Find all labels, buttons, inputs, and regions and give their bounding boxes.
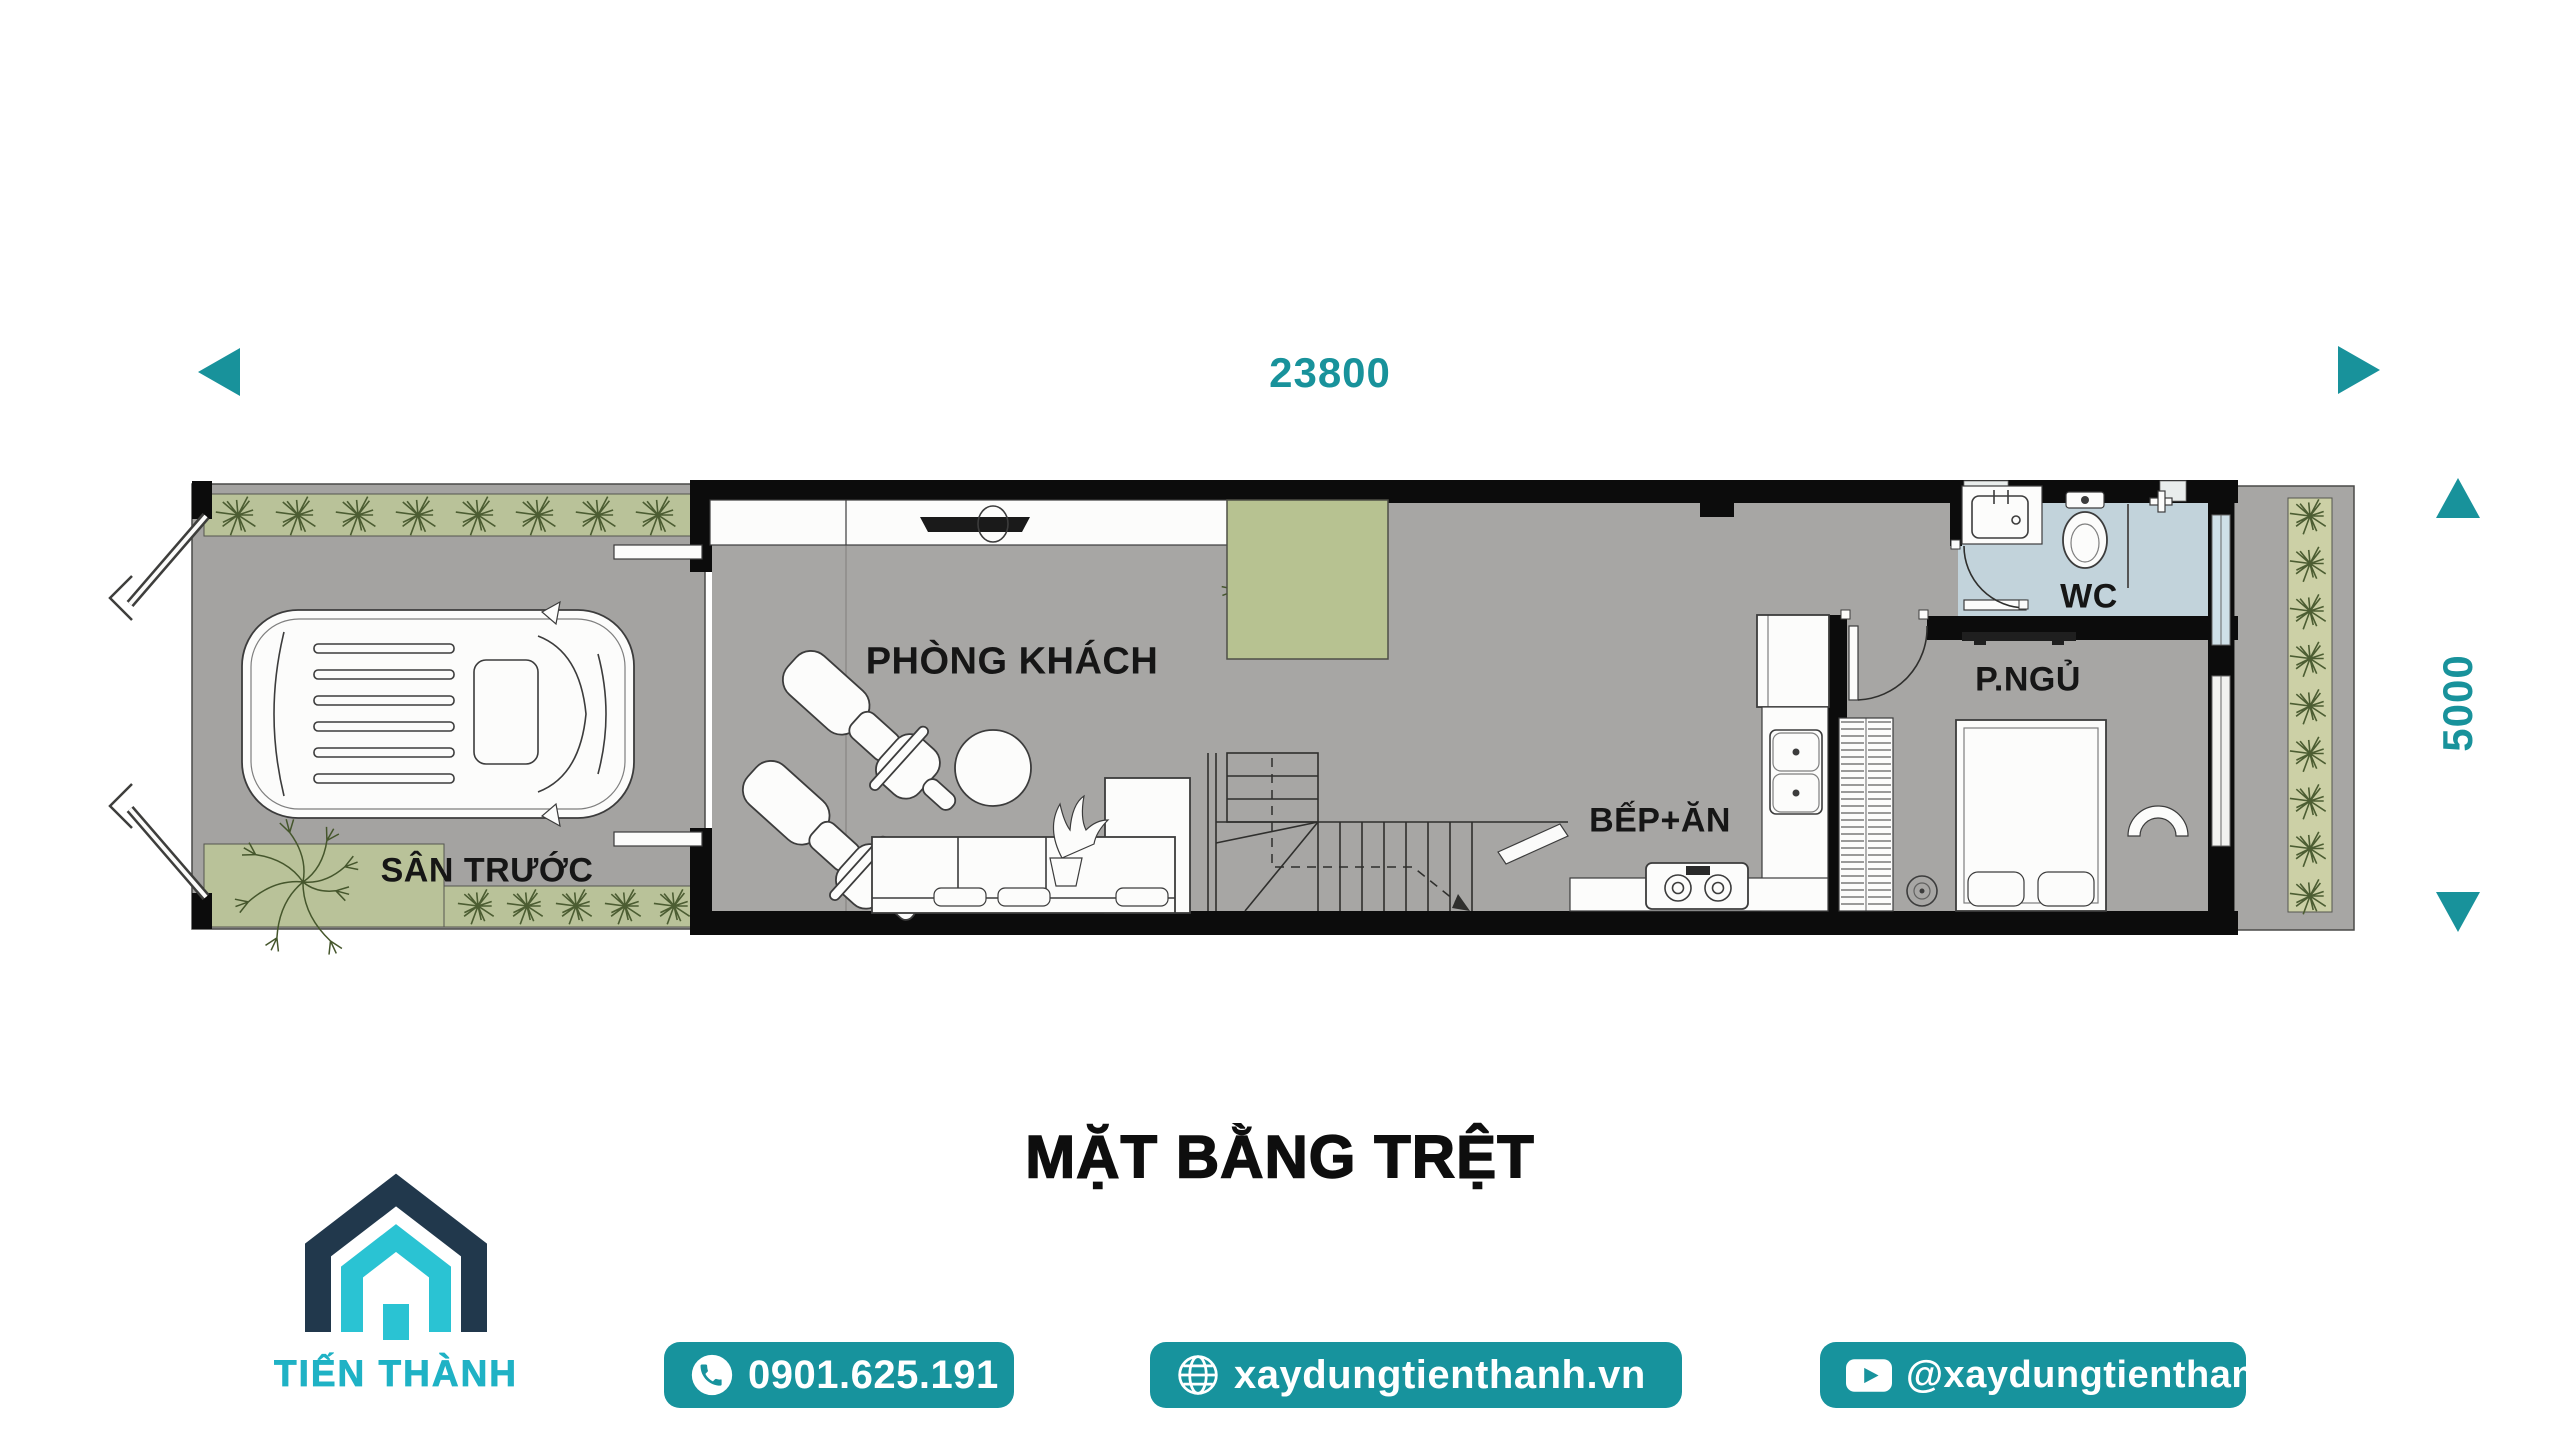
arrow-right-icon	[2338, 346, 2380, 394]
room-label-wc: WC	[2060, 578, 2118, 617]
wc-window	[2212, 515, 2230, 645]
house-logo-icon	[286, 1172, 506, 1344]
backyard-area	[2234, 486, 2354, 930]
room-label-front-yard: SÂN TRƯỚC	[381, 852, 594, 891]
arrow-down-icon	[2436, 892, 2480, 932]
room-label-bedroom: P.NGỦ	[1975, 661, 2081, 700]
website-url: xaydungtienthanh.vn	[1234, 1353, 1646, 1398]
brand-name: TIẾN THÀNH	[274, 1353, 518, 1395]
wc-sink	[1962, 486, 2042, 544]
youtube-handle: @xaydungtienthanh	[1906, 1354, 2279, 1397]
area-rug	[955, 730, 1031, 806]
wc-toilet	[2063, 492, 2107, 568]
bed	[1956, 720, 2106, 911]
page-title: MẶT BẰNG TRỆT	[1025, 1123, 1535, 1192]
website-contact-pill: xaydungtienthanh.vn	[1150, 1342, 1682, 1408]
globe-icon	[1176, 1353, 1220, 1397]
phone-contact-pill: 0901.625.191	[664, 1342, 1014, 1408]
stove	[1646, 863, 1748, 909]
dimension-depth-label: 5000	[2434, 654, 2482, 751]
floor-plan-poster: .furn{fill:#fcfcfb;stroke:#3c3c3c;stroke…	[0, 0, 2560, 1439]
arrow-up-icon	[2436, 478, 2480, 518]
youtube-icon	[1846, 1359, 1892, 1392]
wardrobe	[1839, 718, 1893, 911]
dimension-width-label: 23800	[1269, 349, 1391, 397]
room-label-living-room: PHÒNG KHÁCH	[866, 641, 1159, 684]
bedroom-window	[2212, 676, 2230, 846]
phone-number: 0901.625.191	[748, 1353, 999, 1398]
youtube-contact-pill: @xaydungtienthanh	[1820, 1342, 2246, 1408]
arrow-left-icon	[198, 348, 240, 396]
phone-icon	[690, 1353, 734, 1397]
room-label-kitchen-dining: BẾP+ĂN	[1589, 802, 1731, 841]
tv-console	[710, 500, 1228, 545]
car-topview	[242, 602, 634, 826]
planter-box-living	[1227, 500, 1388, 659]
